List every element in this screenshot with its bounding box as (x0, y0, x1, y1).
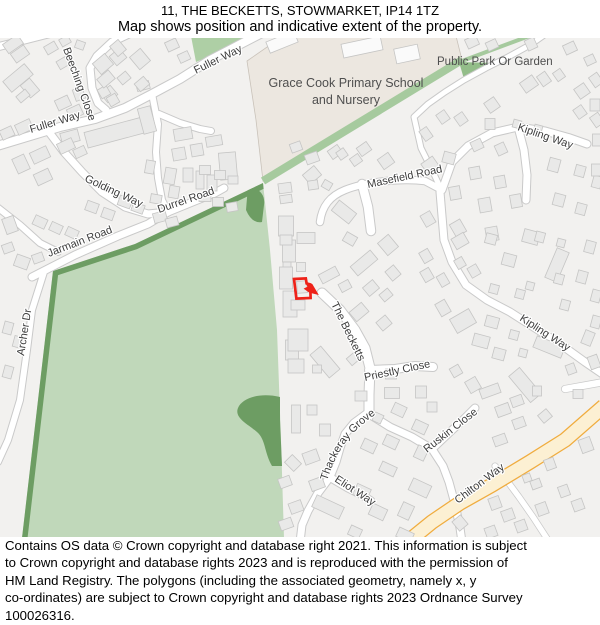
svg-text:and Nursery: and Nursery (312, 93, 381, 107)
svg-text:Public Park Or Garden: Public Park Or Garden (437, 56, 553, 68)
svg-text:Grace Cook Primary School: Grace Cook Primary School (269, 76, 424, 90)
